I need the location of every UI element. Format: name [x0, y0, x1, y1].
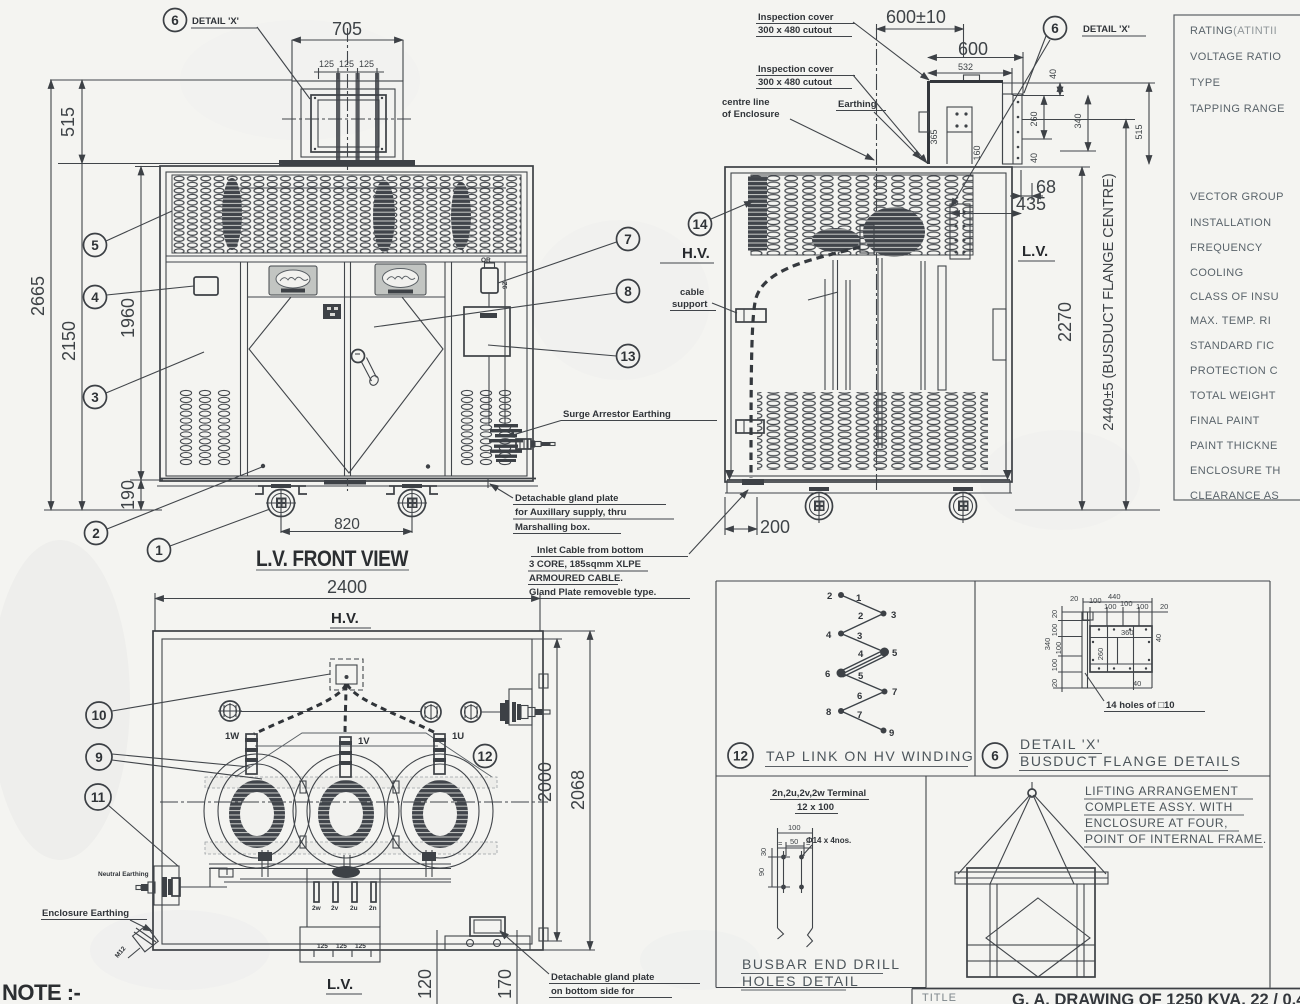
svg-text:2n: 2n: [369, 905, 377, 912]
svg-text:8: 8: [826, 707, 831, 718]
svg-text:TOTAL WEIGHT: TOTAL WEIGHT: [1190, 390, 1276, 402]
svg-text:support: support: [672, 299, 708, 310]
svg-text:VECTOR GROUP: VECTOR GROUP: [1190, 191, 1284, 203]
svg-text:8: 8: [624, 284, 632, 299]
svg-text:Enclosure Earthing: Enclosure Earthing: [42, 908, 129, 919]
svg-text:FREQUENCY: FREQUENCY: [1190, 242, 1263, 254]
svg-text:2v: 2v: [331, 905, 339, 912]
svg-text:125: 125: [319, 59, 334, 69]
svg-text:260: 260: [1029, 111, 1039, 126]
svg-text:centre line: centre line: [722, 97, 770, 108]
svg-text:125: 125: [336, 943, 347, 950]
svg-text:100: 100: [1104, 602, 1117, 611]
svg-text:50: 50: [790, 837, 798, 846]
svg-text:TITLE: TITLE: [922, 992, 957, 1004]
svg-text:2: 2: [92, 526, 100, 541]
svg-text:2w: 2w: [312, 905, 322, 912]
svg-text:3: 3: [891, 610, 896, 621]
svg-text:COOLING: COOLING: [1190, 267, 1244, 279]
svg-text:BUSDUCT FLANGE DETAILS: BUSDUCT FLANGE DETAILS: [1020, 753, 1242, 769]
svg-text:20: 20: [1070, 594, 1078, 603]
svg-text:Detachable gland plate: Detachable gland plate: [515, 493, 618, 504]
svg-text:L.V. FRONT VIEW: L.V. FRONT VIEW: [256, 546, 409, 571]
svg-text:40: 40: [1048, 69, 1058, 79]
svg-text:BUSBAR END DRILL: BUSBAR END DRILL: [742, 956, 901, 972]
svg-text:Neutral Earthing: Neutral Earthing: [98, 871, 149, 878]
svg-text:G. A. DRAWING OF 1250 KVA, 22: G. A. DRAWING OF 1250 KVA, 22 / 0.415 KV: [1012, 991, 1300, 1004]
svg-text:Inlet Cable from bottom: Inlet Cable from bottom: [537, 545, 644, 556]
svg-text:100: 100: [1120, 599, 1133, 608]
svg-text:200: 200: [760, 517, 790, 537]
svg-text:Φ14 x 4nos.: Φ14 x 4nos.: [806, 836, 851, 845]
svg-text:H.V.: H.V.: [682, 245, 710, 262]
svg-text:300 x 480 cutout: 300 x 480 cutout: [758, 77, 833, 88]
svg-text:90: 90: [757, 868, 766, 876]
svg-text:RATING(ATINTII: RATING(ATINTII: [1190, 25, 1277, 37]
svg-text:CLEARANCE AS: CLEARANCE AS: [1190, 490, 1279, 502]
svg-text:7: 7: [624, 232, 632, 247]
svg-text:FINAL PAINT: FINAL PAINT: [1190, 415, 1260, 427]
svg-text:TAP LINK ON HV WINDING: TAP LINK ON HV WINDING: [766, 748, 974, 764]
svg-text:14 holes of □10: 14 holes of □10: [1106, 700, 1175, 711]
svg-text:2150: 2150: [59, 321, 79, 361]
svg-text:100: 100: [788, 823, 801, 832]
svg-text:3 CORE, 185sqmm XLPE: 3 CORE, 185sqmm XLPE: [529, 559, 641, 570]
svg-text:Inspection cover: Inspection cover: [758, 64, 834, 75]
svg-text:20: 20: [1160, 602, 1168, 611]
svg-text:Gland Plate removeble type.: Gland Plate removeble type.: [529, 587, 656, 598]
svg-text:1960: 1960: [118, 298, 138, 338]
svg-text:12: 12: [733, 749, 748, 764]
svg-text:6: 6: [171, 13, 179, 28]
svg-text:100: 100: [1136, 602, 1149, 611]
svg-text:Detachable gland plate: Detachable gland plate: [551, 972, 654, 983]
svg-text:190: 190: [118, 480, 138, 510]
svg-text:365: 365: [929, 129, 939, 144]
svg-text:MAX. TEMP. RI: MAX. TEMP. RI: [1190, 315, 1271, 327]
svg-text:600±10: 600±10: [886, 7, 946, 27]
svg-text:7: 7: [892, 687, 897, 698]
svg-text:40: 40: [1029, 153, 1039, 163]
svg-text:2: 2: [858, 611, 863, 622]
svg-text:170: 170: [495, 969, 515, 999]
svg-text:30: 30: [759, 848, 768, 856]
svg-text:120: 120: [415, 969, 435, 999]
svg-text:on bottom side for: on bottom side for: [551, 986, 635, 997]
svg-text:2000: 2000: [535, 762, 555, 802]
svg-text:11: 11: [91, 790, 106, 805]
svg-text:1: 1: [155, 543, 163, 558]
svg-text:2: 2: [827, 591, 832, 602]
svg-text:VOLTAGE RATIO: VOLTAGE RATIO: [1190, 51, 1281, 63]
svg-text:H.V.: H.V.: [331, 610, 359, 627]
svg-text:ENCLOSURE TH: ENCLOSURE TH: [1190, 465, 1281, 477]
svg-text:DETAIL 'X': DETAIL 'X': [192, 16, 239, 27]
svg-text:40: 40: [1133, 679, 1141, 688]
svg-text:340: 340: [1073, 113, 1083, 128]
svg-text:125: 125: [317, 943, 328, 950]
svg-text:100: 100: [1054, 642, 1063, 655]
svg-text:100: 100: [1050, 624, 1059, 637]
svg-text:5: 5: [892, 648, 898, 659]
svg-text:4: 4: [91, 290, 99, 305]
svg-text:2400: 2400: [327, 577, 367, 597]
svg-text:TYPE: TYPE: [1190, 77, 1220, 89]
svg-text:20: 20: [1050, 610, 1059, 618]
svg-text:L.V.: L.V.: [327, 976, 353, 993]
svg-text:Surge Arrestor Earthing: Surge Arrestor Earthing: [563, 409, 671, 420]
svg-text:20: 20: [1050, 679, 1059, 687]
svg-text:4: 4: [826, 630, 832, 641]
svg-text:10: 10: [91, 708, 106, 723]
svg-text:6: 6: [991, 749, 999, 764]
svg-text:1W: 1W: [225, 731, 239, 742]
svg-text:515: 515: [58, 107, 78, 137]
svg-text:cable: cable: [680, 287, 704, 298]
svg-text:STANDARD ГIC: STANDARD ГIC: [1190, 340, 1275, 352]
svg-text:for Auxillary supply, thru: for Auxillary supply, thru: [515, 507, 627, 518]
svg-text:of Enclosure: of Enclosure: [722, 109, 780, 120]
svg-text:POINT OF INTERNAL FRAME.: POINT OF INTERNAL FRAME.: [1085, 832, 1267, 846]
svg-text:12: 12: [477, 749, 492, 764]
svg-text:L.V.: L.V.: [1022, 243, 1048, 260]
svg-text:ENCLOSURE AT FOUR,: ENCLOSURE AT FOUR,: [1085, 816, 1228, 830]
svg-text:2n,2u,2v,2w Terminal: 2n,2u,2v,2w Terminal: [772, 788, 866, 799]
svg-text:9: 9: [889, 728, 894, 739]
svg-text:1U: 1U: [452, 731, 464, 742]
svg-text:2440±5 (BUSDUCT FLANGE CENTRE): 2440±5 (BUSDUCT FLANGE CENTRE): [1101, 173, 1117, 430]
svg-text:6: 6: [1051, 21, 1059, 36]
svg-text:12 x 100: 12 x 100: [797, 802, 834, 813]
svg-text:PROTECTION C: PROTECTION C: [1190, 365, 1278, 377]
svg-text:1: 1: [856, 593, 862, 604]
svg-text:3: 3: [857, 631, 862, 642]
svg-text:100: 100: [1050, 659, 1059, 672]
svg-text:14: 14: [692, 217, 708, 232]
svg-text:360: 360: [1121, 628, 1134, 637]
svg-text:9: 9: [95, 750, 103, 765]
svg-text:260: 260: [1096, 648, 1105, 661]
svg-text:6: 6: [857, 691, 862, 702]
svg-text:125: 125: [359, 59, 374, 69]
svg-text:DETAIL 'X': DETAIL 'X': [1083, 24, 1130, 35]
svg-text:COMPLETE ASSY. WITH: COMPLETE ASSY. WITH: [1085, 800, 1233, 814]
svg-text:5: 5: [858, 671, 864, 682]
svg-text:440: 440: [1108, 592, 1121, 601]
svg-text:820: 820: [334, 516, 360, 533]
svg-text:=: =: [778, 839, 783, 848]
svg-text:2068: 2068: [568, 770, 588, 810]
svg-text:100: 100: [1089, 596, 1102, 605]
svg-text:2270: 2270: [1055, 302, 1075, 342]
svg-text:7: 7: [857, 710, 862, 721]
svg-text:340: 340: [1043, 638, 1052, 651]
svg-text:HOLES DETAIL: HOLES DETAIL: [742, 973, 859, 989]
svg-text:Earthing: Earthing: [838, 99, 877, 110]
svg-text:3: 3: [91, 390, 99, 405]
svg-text:1V: 1V: [358, 736, 370, 747]
svg-text:INSTALLATION: INSTALLATION: [1190, 217, 1271, 229]
svg-text:532: 532: [958, 62, 973, 72]
svg-text:Marshalling box.: Marshalling box.: [515, 522, 590, 533]
svg-text:125: 125: [339, 59, 354, 69]
svg-text:40: 40: [1154, 634, 1163, 642]
svg-text:PAINT THICKNE: PAINT THICKNE: [1190, 440, 1278, 452]
svg-text:NOTE :-: NOTE :-: [2, 980, 81, 1004]
svg-text:ARMOURED CABLE.: ARMOURED CABLE.: [529, 573, 623, 584]
svg-text:Inspection cover: Inspection cover: [758, 12, 834, 23]
svg-text:435: 435: [1016, 194, 1046, 214]
svg-text:125: 125: [355, 943, 366, 950]
svg-text:5: 5: [91, 238, 99, 253]
svg-text:300 x 480 cutout: 300 x 480 cutout: [758, 25, 833, 36]
svg-text:515: 515: [1134, 124, 1144, 139]
svg-text:4: 4: [858, 649, 864, 660]
svg-text:DETAIL 'X': DETAIL 'X': [1020, 736, 1101, 752]
svg-text:600: 600: [958, 39, 988, 59]
svg-text:2u: 2u: [350, 905, 358, 912]
svg-text:2665: 2665: [28, 276, 48, 316]
svg-text:LIFTING ARRANGEMENT: LIFTING ARRANGEMENT: [1085, 784, 1238, 798]
svg-text:TAPPING RANGE: TAPPING RANGE: [1190, 103, 1285, 115]
svg-text:13: 13: [620, 349, 636, 364]
svg-text:CLASS OF INSU: CLASS OF INSU: [1190, 291, 1279, 303]
svg-text:6: 6: [825, 669, 830, 680]
